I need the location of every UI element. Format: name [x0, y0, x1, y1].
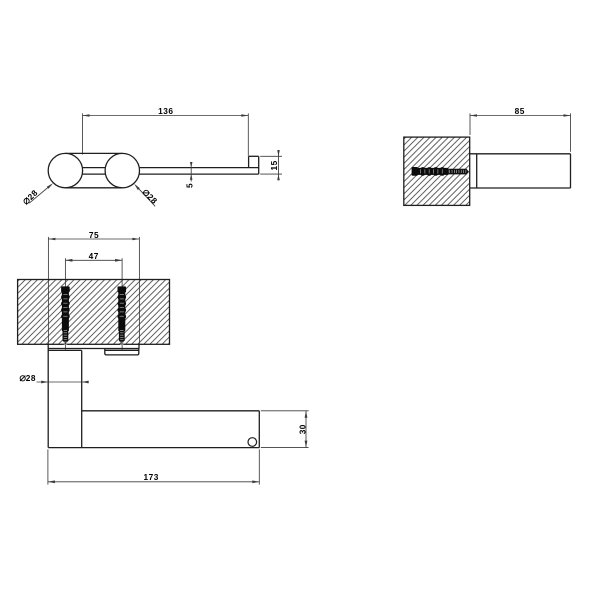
svg-text:47: 47 — [89, 251, 99, 261]
svg-text:75: 75 — [89, 230, 99, 240]
svg-text:15: 15 — [269, 160, 279, 170]
svg-text:136: 136 — [158, 106, 173, 116]
svg-text:28: 28 — [26, 373, 36, 383]
svg-text:173: 173 — [144, 472, 159, 482]
svg-text:5: 5 — [184, 183, 194, 188]
svg-text:30: 30 — [298, 424, 308, 434]
svg-text:85: 85 — [515, 106, 525, 116]
